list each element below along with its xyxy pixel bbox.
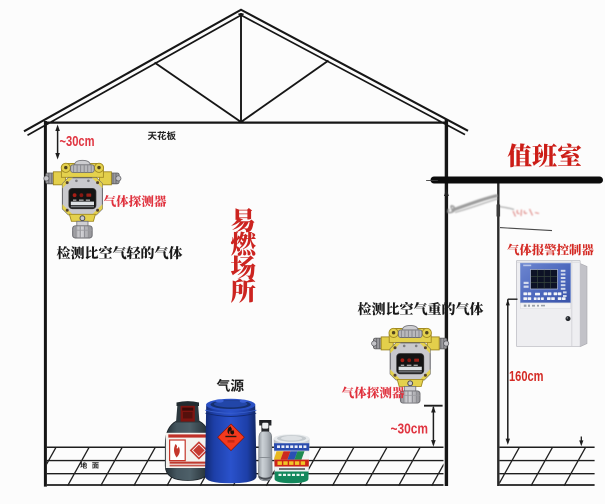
svg-text:~30cm: ~30cm <box>60 134 95 150</box>
svg-text:160cm: 160cm <box>509 369 544 385</box>
svg-text:~30cm: ~30cm <box>391 422 429 438</box>
